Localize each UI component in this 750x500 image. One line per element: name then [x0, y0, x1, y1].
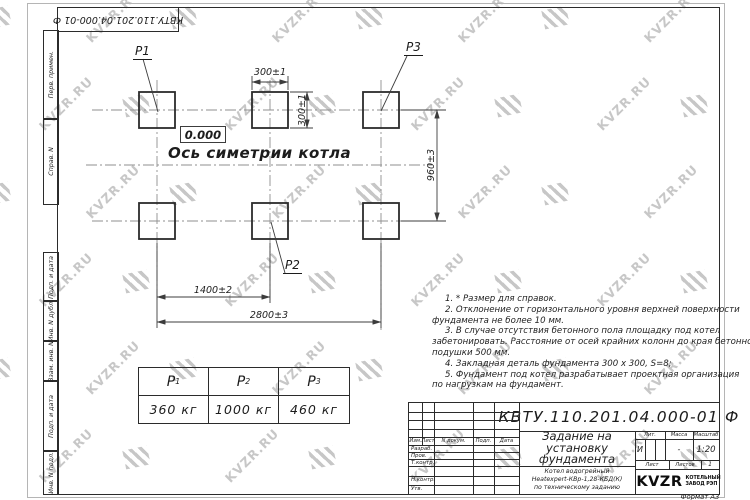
title-block: КВТУ.110.201.04.000-01 Ф Задание на уста…: [408, 402, 720, 495]
note-line: 4. Закладная деталь фундамента 300 x 300…: [432, 359, 730, 370]
load-table-header: P3: [279, 368, 349, 396]
title-block-line: [669, 460, 670, 469]
note-line: по нагрузкам на фундамент.: [432, 380, 730, 391]
title-block-role: Н.контр.: [409, 476, 436, 483]
title-block-line: [409, 420, 519, 421]
col-sign: Подп.: [473, 437, 494, 445]
dim-col-spacing-mid: 1400±2: [190, 285, 236, 296]
technical-notes: 1. * Размер для справок.2. Отклонение от…: [432, 294, 730, 391]
sidebar-cell-label: Подп. и дата: [48, 256, 55, 299]
col-date: Дата: [494, 437, 519, 445]
col-ndoc: N докум.: [434, 437, 473, 445]
subject-line-2: Heatexpert-КВр-1,28-КБД(К): [532, 476, 623, 484]
title-block-role: Утв.: [409, 485, 436, 492]
title-block-line: [635, 469, 719, 470]
kvzr-logo-text: KVZR: [636, 474, 682, 490]
note-line: 3. В случае отсутствия бетонного пола пл…: [432, 326, 730, 337]
title-block-line: [409, 437, 519, 438]
title-block-line: [519, 403, 520, 494]
note-line: забетонировать. Расстояние от осей крайн…: [432, 337, 730, 348]
sidebar-cell: Перв. примен.: [43, 30, 59, 120]
sidebar-cell-label: Подп. и дата: [48, 395, 55, 438]
title-block-line: [519, 431, 719, 432]
title-block-line: [635, 439, 719, 440]
logo-caption-line-2: ЗАВОД РЭП: [685, 482, 717, 487]
pad-label-p2: P2: [283, 258, 302, 274]
top-stamp: КВТУ.110.201.04.000-01 Ф: [57, 7, 179, 32]
sidebar-cell: Взам. инв. N: [43, 340, 59, 382]
logo-caption-line-1: КОТЕЛЬНЫЙ: [685, 476, 720, 481]
load-table: P1P2P3360 кг1000 кг460 кг: [138, 367, 350, 424]
format-label: Формат А3: [645, 493, 750, 500]
title-block-role: Пров.: [409, 452, 436, 459]
elevation-mark: 0.000: [180, 126, 226, 143]
lit-value: И: [635, 439, 645, 460]
title-block-line: [655, 439, 656, 460]
title-block-title: Задание на установку фундамента: [519, 431, 635, 466]
title-block-role: Разраб.: [409, 445, 436, 452]
kvzr-logo-caption: КОТЕЛЬНЫЙ ЗАВОД РЭП: [685, 476, 720, 487]
title-block-line: [409, 412, 519, 413]
dim-pad-width: 300±1: [247, 67, 293, 78]
title-block-line: [645, 439, 646, 460]
load-table-header: P1: [139, 368, 209, 396]
sheet-label: Лист: [635, 460, 669, 469]
dim-pad-height: 300±1: [297, 89, 308, 131]
title-block-line: [665, 431, 666, 460]
mass-value: -: [665, 439, 693, 460]
title-block-line: [409, 429, 519, 430]
drawing-sheet: KVZR.RUKVZR.RUKVZR.RUKVZR.RUKVZR.RUKVZR.…: [0, 0, 750, 500]
scale-value: 1:20: [693, 439, 719, 460]
pad-label-p3: P3: [404, 40, 423, 56]
mass-header: Масса: [665, 431, 693, 439]
sidebar-cell-label: Справ. N: [48, 147, 55, 176]
top-stamp-doc-number: КВТУ.110.201.04.000-01 Ф: [53, 14, 183, 25]
sidebar-cell-label: Инв. N дубл.: [48, 300, 55, 341]
watermark-logo-icon: [0, 6, 12, 30]
title-block-line: [519, 466, 635, 467]
title-block-line: [409, 466, 519, 467]
note-line: 5. Фундамент под котел разрабатывает про…: [432, 370, 730, 381]
col-list: Лист: [422, 437, 434, 445]
sidebar-cell: Справ. N: [43, 118, 59, 205]
title-block-line: [701, 460, 702, 469]
kvzr-logo: KVZR КОТЕЛЬНЫЙ ЗАВОД РЭП: [635, 469, 719, 494]
title-block-line: [494, 403, 495, 494]
watermark-logo-icon: [0, 182, 12, 206]
sidebar-cell-label: Взам. инв. N: [48, 341, 55, 382]
lit-header: Лит.: [635, 431, 665, 439]
scale-header: Масштаб: [693, 431, 719, 439]
title-block-line: [635, 431, 636, 494]
sidebar-cell-label: Перв. примен.: [48, 51, 55, 98]
sidebar-cell: Подп. и дата: [43, 380, 59, 452]
sidebar-cell: Инв. N дубл.: [43, 300, 59, 342]
title-block-line: [422, 403, 423, 445]
note-line: 1. * Размер для справок.: [432, 294, 730, 305]
load-table-value: 360 кг: [139, 396, 209, 423]
dim-col-spacing-total: 2800±3: [246, 310, 292, 321]
sidebar-cell-label: Инв. N подл.: [48, 452, 55, 494]
watermark-logo-icon: [0, 358, 12, 382]
sheets-value: 1: [701, 460, 719, 469]
sidebar-cell: Подп. и дата: [43, 252, 59, 302]
title-block-line: [473, 403, 474, 494]
title-line-3: фундамента: [539, 454, 615, 466]
note-line: подушки 500 мм.: [432, 348, 730, 359]
sheets-label: Листов: [669, 460, 701, 469]
boiler-symmetry-axis-label: Ось симетрии котла: [168, 144, 351, 162]
sidebar-cell: Инв. N подл.: [43, 450, 59, 495]
subject-line-3: по техническому заданию: [534, 484, 620, 492]
pad-label-p1: P1: [133, 44, 152, 60]
title-block-role: Т.контр.: [409, 459, 436, 466]
load-table-value: 1000 кг: [209, 396, 279, 423]
title-block-line: [635, 460, 719, 461]
title-block-doc-number: КВТУ.110.201.04.000-01 Ф: [519, 403, 719, 431]
note-line: фундамента не более 10 мм.: [432, 316, 730, 327]
subject-line-1: Котел водогрейный: [545, 468, 610, 476]
load-table-value: 460 кг: [279, 396, 349, 423]
dim-row-spacing: 960±3: [426, 140, 437, 190]
title-block-subject: Котел водогрейный Heatexpert-КВр-1,28-КБ…: [519, 466, 635, 494]
title-block-line: [693, 431, 694, 460]
load-table-header: P2: [209, 368, 279, 396]
note-line: 2. Отклонение от горизонтального уровня …: [432, 305, 730, 316]
